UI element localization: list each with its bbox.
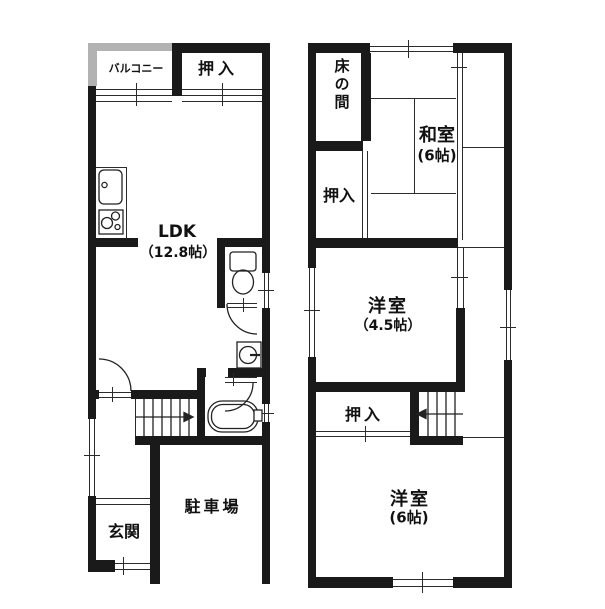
window-tick (258, 413, 274, 414)
balcony-label: バルコニー (109, 60, 164, 76)
bathtub (208, 401, 258, 432)
closet-upper-label: 押入 (323, 182, 355, 206)
window-line (96, 101, 172, 102)
staircase-1f (135, 399, 193, 436)
shoji-line (457, 53, 458, 240)
closet-lower-label: 押入 (345, 401, 383, 425)
toilet-tank (230, 252, 256, 271)
kitchen-sink (99, 170, 122, 204)
stairs-up-arrow (184, 413, 193, 422)
parking-label: 駐車場 (184, 493, 241, 517)
wall (504, 360, 512, 588)
window-tick (422, 572, 423, 593)
faucet-icon (102, 182, 107, 187)
wall (197, 368, 205, 444)
western-room-large-size-label: (6帖) (389, 507, 428, 528)
ldk-size-label: （12.8帖） (140, 242, 217, 262)
wall (262, 422, 270, 584)
japanese-room-size-label: (6帖) (417, 145, 456, 166)
stairs-edge (135, 399, 136, 436)
door-line (115, 563, 150, 564)
shoji-tick (451, 67, 467, 68)
window-tick (136, 83, 137, 106)
wall (88, 238, 138, 247)
door-tick (233, 373, 234, 386)
window-tick (408, 40, 409, 58)
wall (308, 238, 458, 248)
wall (456, 308, 465, 392)
door-arc (99, 359, 131, 391)
wall (88, 560, 115, 572)
wall (262, 308, 270, 404)
washbasin-bowl (240, 347, 257, 364)
stove-burner (102, 218, 113, 229)
window-line (370, 51, 453, 52)
window-line (89, 419, 90, 496)
fusuma-tick (451, 277, 468, 278)
wall (308, 43, 370, 53)
tatami-line (414, 98, 415, 193)
window-line (314, 268, 315, 357)
floorplan-canvas: バルコニー 押入 LDK （12.8帖） 玄関 駐車場 (0, 0, 605, 609)
japanese-room-label: 和室 (419, 121, 455, 147)
wall (88, 86, 96, 419)
washbasin (237, 342, 261, 368)
entrance-label: 玄関 (108, 518, 140, 542)
window-line (96, 95, 172, 96)
window-line (510, 290, 511, 360)
wall (150, 560, 160, 572)
ldk-label: LDK (158, 222, 196, 242)
door-tick (112, 387, 113, 402)
window-line (94, 419, 95, 496)
wall (172, 43, 270, 53)
window-line (506, 290, 507, 360)
stove (99, 210, 123, 234)
fusuma-line (362, 151, 363, 240)
door-line (225, 377, 257, 378)
wall (308, 577, 393, 588)
wall (88, 390, 99, 399)
balcony-wall-left (88, 43, 97, 86)
wall (308, 382, 465, 392)
door-line (99, 397, 131, 398)
fusuma-line (367, 151, 368, 240)
bath-tap (254, 410, 262, 421)
window-tick (304, 310, 320, 311)
window-line (96, 89, 172, 90)
window-line (309, 268, 310, 357)
opening-line (458, 247, 504, 248)
door-line (115, 569, 150, 570)
fusuma-line (316, 436, 410, 437)
wall (361, 53, 371, 141)
partition-line (96, 504, 150, 505)
corridor-line (463, 147, 504, 148)
wall (308, 141, 363, 151)
bathtub-inner (212, 405, 255, 429)
window-line (370, 46, 453, 47)
tokonoma-label: 床の間 (332, 58, 353, 112)
kitchen-counter (126, 167, 127, 239)
door-tick (243, 298, 244, 312)
wall (172, 43, 182, 96)
window-tick (84, 455, 100, 456)
landing-line (463, 437, 504, 438)
fusuma-tick (365, 426, 366, 442)
wall (410, 436, 463, 445)
wall (504, 43, 512, 290)
wall (262, 43, 270, 273)
partition-line (96, 498, 150, 499)
wall (131, 390, 197, 399)
fusuma-line (316, 431, 410, 432)
wall (453, 577, 512, 588)
door-line (99, 392, 131, 393)
wall (217, 238, 225, 308)
door-line (225, 382, 257, 383)
western-room-small-size-label: （4.5帖） (355, 315, 422, 335)
balcony-wall-top (88, 43, 177, 51)
toilet-bowl (233, 270, 254, 294)
stove-burner (112, 212, 120, 220)
window-tick (258, 290, 274, 291)
kitchen-counter (96, 167, 126, 168)
door-tick (123, 557, 124, 575)
door-arc (225, 383, 253, 411)
staircase-2f (417, 392, 463, 436)
closet-label: 押入 (198, 55, 238, 79)
stove-burner (115, 225, 120, 230)
window-tick (500, 327, 516, 328)
window-tick (222, 83, 223, 106)
wall (308, 43, 316, 268)
